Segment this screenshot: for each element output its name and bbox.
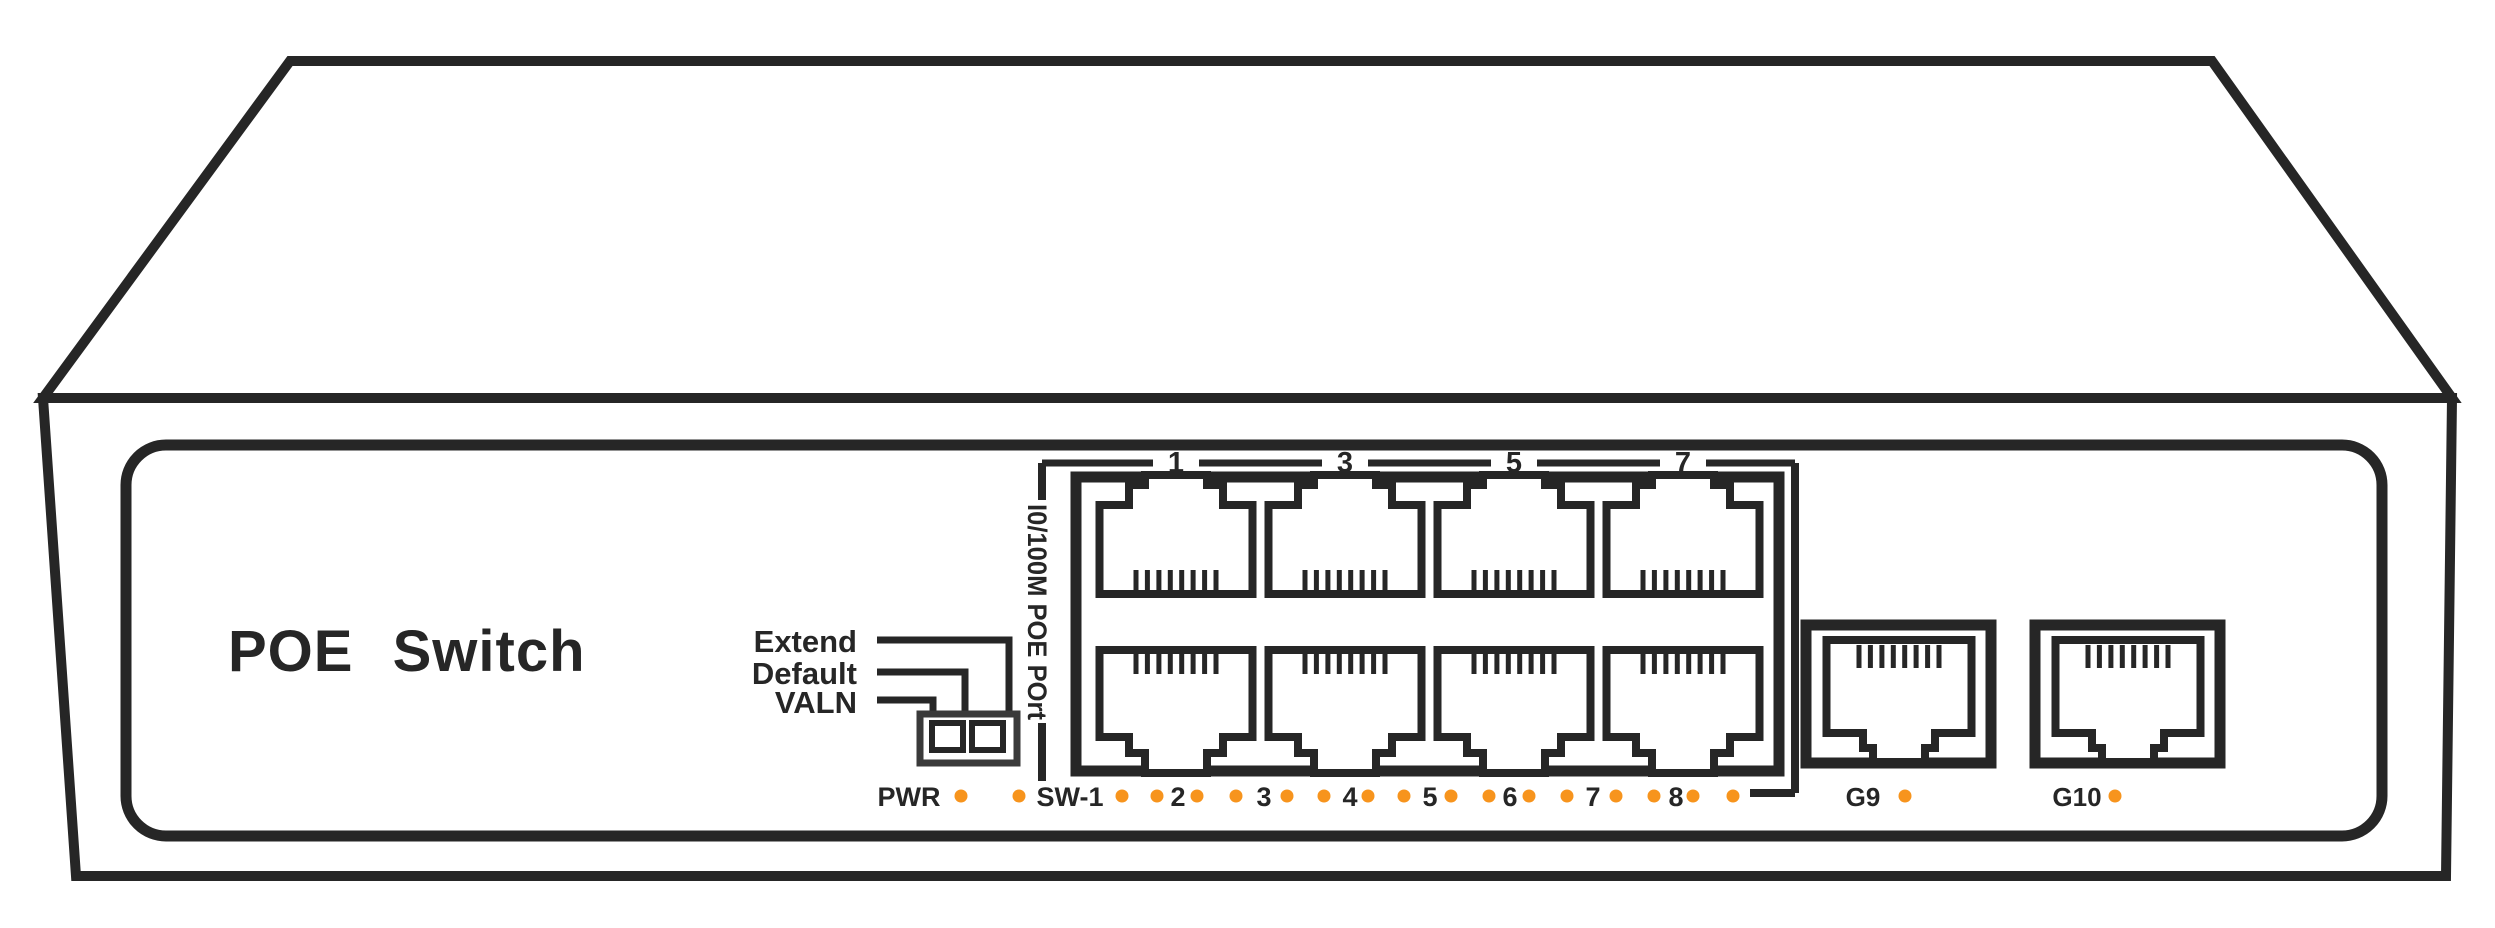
port-group-vertical-label: I0/100M POE POrt	[1022, 504, 1052, 720]
dip-switch-window-2[interactable]	[972, 723, 1003, 750]
port-number-label-1: 1	[1168, 447, 1184, 479]
dip-label-valn: VALN	[775, 685, 857, 720]
poe-switch-diagram: POE Switch Extend Default VALN I0/100M P…	[0, 0, 2495, 928]
led-dot	[1318, 790, 1331, 803]
led-dot	[1445, 790, 1458, 803]
led-port-label-1: SW-1	[1037, 782, 1104, 812]
port-number-label-3: 3	[1337, 447, 1353, 479]
dip-switch-window-1[interactable]	[932, 723, 963, 750]
led-dot	[1281, 790, 1294, 803]
led-dot	[1561, 790, 1574, 803]
brand-label: POE Switch	[228, 619, 586, 684]
chassis-top-face	[43, 61, 2452, 398]
led-dot	[955, 790, 968, 803]
led-dot	[1151, 790, 1164, 803]
port-number-label-5: 5	[1506, 447, 1522, 479]
fe-port-group: I0/100M POE POrt 1 3 5 7	[1022, 447, 1795, 793]
led-dot-g9	[1899, 790, 1912, 803]
dip-label-extend: Extend	[754, 624, 857, 659]
led-dot	[1523, 790, 1536, 803]
led-dot	[1398, 790, 1411, 803]
led-dot	[1230, 790, 1243, 803]
led-dot	[1687, 790, 1700, 803]
led-dot	[1191, 790, 1204, 803]
led-power-label: PWR	[878, 782, 941, 812]
led-port-label-6: 6	[1502, 782, 1517, 812]
led-port-label-3: 3	[1256, 782, 1271, 812]
led-port-label-8: 8	[1668, 782, 1683, 812]
uplink-label-g10: G10	[2052, 782, 2101, 812]
led-dot	[1362, 790, 1375, 803]
port-number-label-7: 7	[1675, 447, 1691, 479]
led-dot	[1648, 790, 1661, 803]
led-port-label-4: 4	[1342, 782, 1357, 812]
led-dot	[1013, 790, 1026, 803]
uplink-label-g9: G9	[1846, 782, 1881, 812]
led-dot	[1483, 790, 1496, 803]
led-dot	[1610, 790, 1623, 803]
led-dot-g10	[2109, 790, 2122, 803]
led-dot	[1727, 790, 1740, 803]
led-port-label-5: 5	[1422, 782, 1437, 812]
diagram-canvas: POE Switch Extend Default VALN I0/100M P…	[0, 0, 2495, 928]
led-port-label-2: 2	[1170, 782, 1185, 812]
led-port-label-7: 7	[1585, 782, 1600, 812]
led-dot	[1116, 790, 1129, 803]
